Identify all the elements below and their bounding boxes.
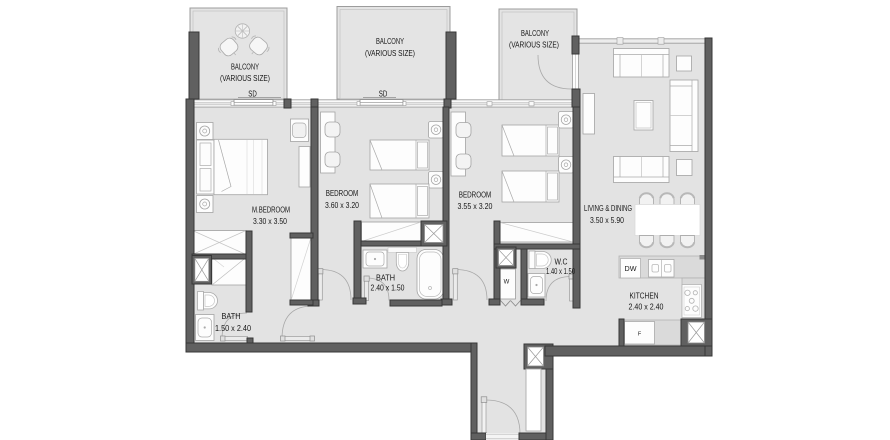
svg-text:BALCONY: BALCONY	[376, 37, 404, 46]
svg-text:BEDROOM: BEDROOM	[326, 189, 359, 198]
svg-text:KITCHEN: KITCHEN	[630, 292, 659, 301]
svg-text:3.60 x 3.20: 3.60 x 3.20	[325, 201, 360, 210]
svg-text:1.50 x 2.40: 1.50 x 2.40	[215, 324, 252, 333]
svg-text:(VARIOUS SIZE): (VARIOUS SIZE)	[220, 74, 270, 83]
svg-text:BALCONY: BALCONY	[521, 29, 549, 38]
svg-text:2.40 x 2.40: 2.40 x 2.40	[629, 303, 665, 312]
svg-text:(VARIOUS SIZE): (VARIOUS SIZE)	[509, 41, 559, 50]
svg-text:SD: SD	[248, 90, 257, 99]
svg-text:2.40 x 1.50: 2.40 x 1.50	[371, 284, 406, 293]
svg-text:BATH: BATH	[376, 274, 395, 283]
svg-text:3.30 x 3.50: 3.30 x 3.50	[253, 217, 288, 226]
svg-text:BATH: BATH	[222, 312, 241, 321]
svg-text:DW: DW	[625, 266, 637, 273]
svg-text:3.55 x 3.20: 3.55 x 3.20	[458, 202, 494, 211]
svg-text:BALCONY: BALCONY	[231, 63, 259, 72]
svg-text:W: W	[504, 280, 510, 286]
svg-text:BEDROOM: BEDROOM	[459, 191, 492, 200]
svg-text:SD: SD	[379, 90, 388, 99]
svg-text:(VARIOUS SIZE): (VARIOUS SIZE)	[365, 49, 415, 58]
svg-text:LIVING & DINING: LIVING & DINING	[584, 204, 632, 213]
svg-text:M.BEDROOM: M.BEDROOM	[252, 206, 290, 215]
svg-text:3.50 x 5.90: 3.50 x 5.90	[590, 216, 625, 225]
svg-text:W.C: W.C	[555, 258, 568, 267]
svg-text:1.40 x 1.50: 1.40 x 1.50	[546, 267, 575, 276]
